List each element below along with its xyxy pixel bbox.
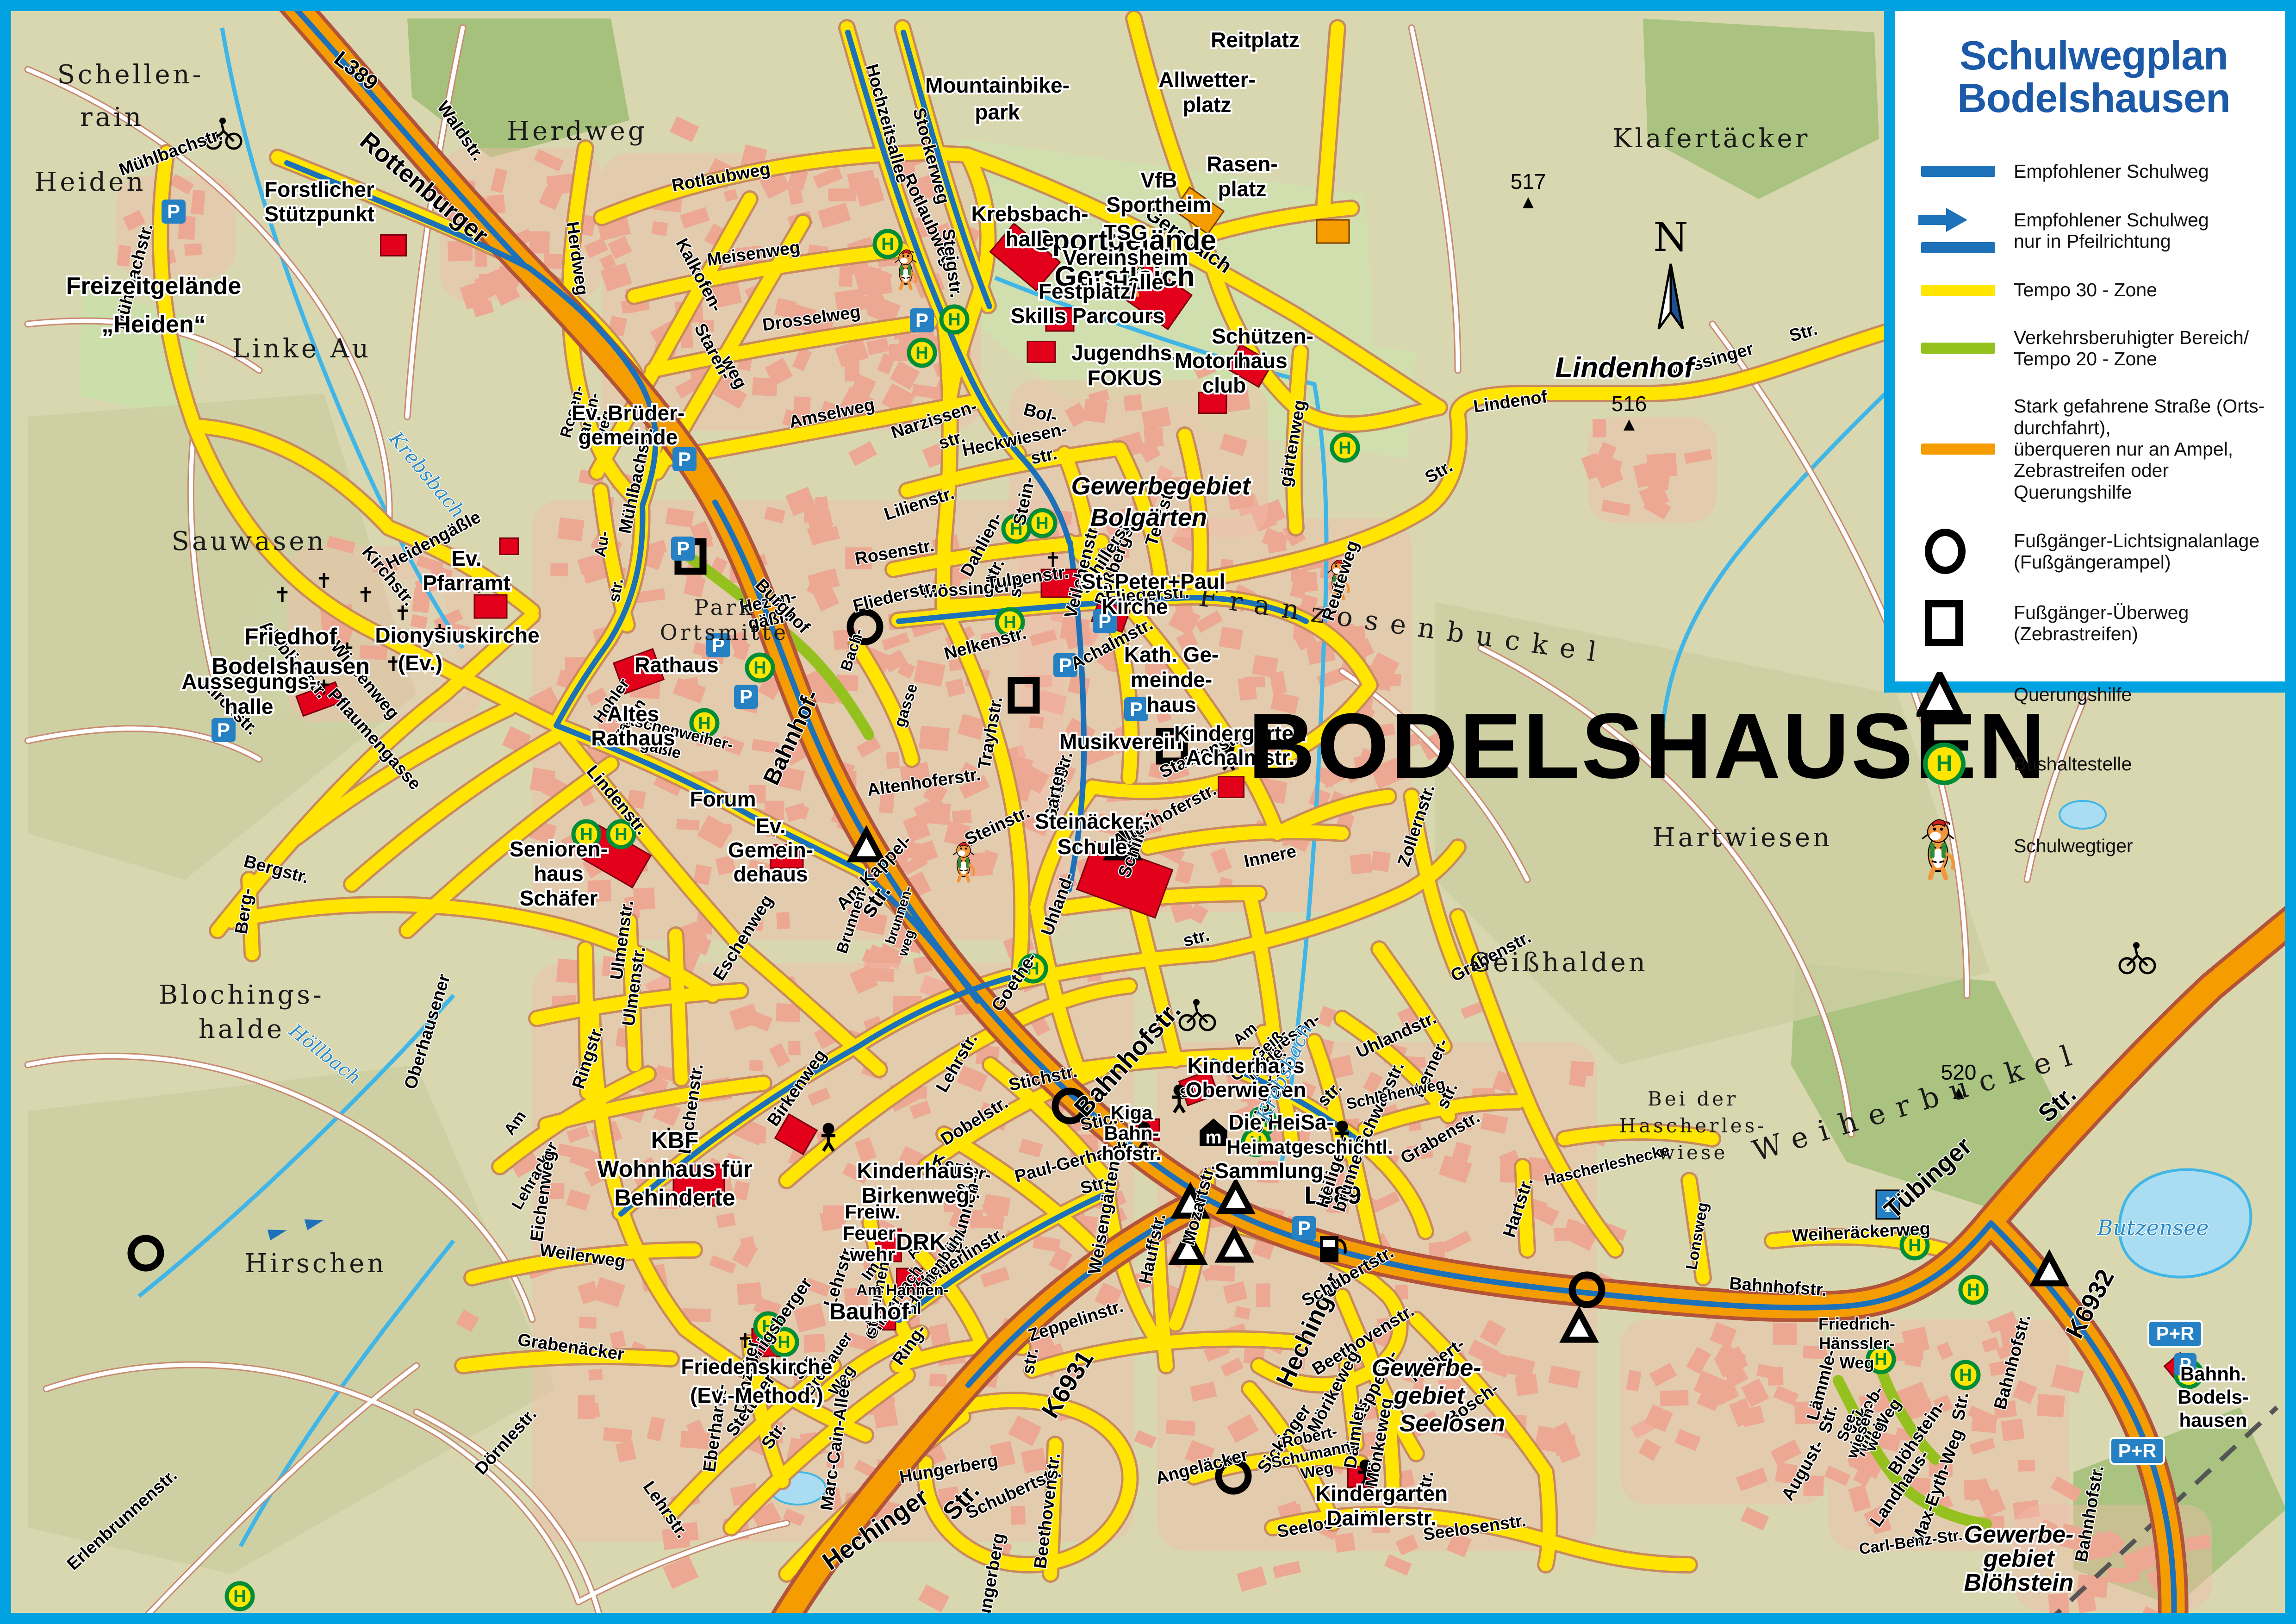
building [1660,1390,1688,1406]
place-label: Blochings- [159,980,324,1010]
legend-item-label: Fußgänger-Lichtsignalanlage(Fußgängeramp… [2014,530,2259,573]
poi-building [381,235,406,256]
park-and-ride-icon: P+R [2148,1321,2202,1347]
poi-label: KBF [651,1127,699,1153]
svg-text:P: P [740,686,753,707]
poi-label: hofstr. [1102,1143,1161,1164]
building [184,243,202,256]
building [1904,1346,1923,1367]
bus-stop-icon: H [1953,1362,1979,1388]
street-label: Am Hannen- [856,1281,949,1299]
street-label: Hänssler- [1819,1334,1895,1353]
schulwegplan-page: ✝✝✝✝✝✝✝✝✝✝✝✝✝HHHHHHHHHHHHHHHHHHHHHHPPPPP… [0,0,2296,1624]
building [803,1334,825,1353]
poi-label: Reitplatz [1211,28,1300,52]
building [1350,854,1372,874]
svg-text:H: H [915,344,928,363]
legend-item-main-road: Stark gefahrene Straße (Orts-durchfahrt)… [1916,395,2271,503]
legend-item-tempo20: Verkehrsberuhigter Bereich/Tempo 20 - Zo… [1916,327,2271,370]
poi-label: Wohnhaus für [597,1156,752,1182]
bus-stop-icon: H [1916,743,2014,785]
parking-icon: P [671,537,695,561]
poi-label: Freizeitgelände [66,273,242,300]
spot-height-label: 517 [1511,169,1546,194]
building [1256,1283,1270,1307]
poi-label: VfB [1140,168,1177,192]
poi-label: Dionysiuskirche [375,623,539,647]
poi-label: gemeinde [579,425,678,449]
building [1029,716,1044,729]
place-label: Geißhalden [1469,948,1648,978]
parking-icon: P [734,685,758,709]
legend-item-label: Schulwegtiger [2014,835,2133,856]
legend-item-label: Fußgänger-Überweg(Zebrastreifen) [2014,602,2189,645]
building [1166,1419,1195,1436]
svg-text:H: H [1959,1366,1972,1385]
svg-text:P: P [167,200,180,222]
poi-label: Steinäcker- [1035,809,1150,833]
poi-building-orange [1317,220,1349,243]
building [839,266,853,287]
building [1334,1532,1356,1553]
poi-label: Krebsbach- [971,202,1088,226]
building [865,968,895,982]
poi-label: gebiet [1393,1382,1466,1409]
poi-label: Stützpunkt [264,202,374,226]
building [930,802,951,825]
poi-label: Gewerbe- [1372,1355,1481,1381]
poi-label: Mountainbike- [925,73,1070,97]
building [1266,532,1287,554]
building [558,517,585,541]
legend-item-label: Verkehrsberuhigter Bereich/Tempo 20 - Zo… [2014,327,2249,370]
street-label: Friedrich- [1818,1314,1895,1333]
building [788,1041,801,1055]
poi-label: Blöhstein [1964,1569,2074,1596]
parking-icon: P [1124,697,1148,721]
poi-label: haus [1146,693,1196,717]
poi-label: Seelosen [1400,1410,1505,1437]
legend-title: Schulwegplan Bodelshausen [1916,34,2271,119]
building [1646,453,1677,478]
legend-items: Empfohlener SchulwegEmpfohlener Schulweg… [1916,161,2271,881]
poi-label: Bahn- [1104,1122,1159,1144]
building [2018,1460,2035,1471]
poi-label: Freiw. [845,1201,900,1223]
poi-label: platz [1218,177,1267,201]
svg-text:H: H [1338,438,1351,458]
poi-label: park [975,100,1020,124]
water-label: Butzensee [2097,1215,2209,1240]
place-label: Park [694,595,754,620]
poi-label: Forstlicher [264,177,374,201]
svg-text:P: P [1298,1217,1311,1239]
svg-text:P+R: P+R [2118,1440,2157,1462]
poi-label: Ev. [451,546,482,570]
poi-label: Allwetter- [1158,68,1256,92]
poi-label: (Ev.) [398,651,442,675]
poi-building [1219,777,1244,798]
route-icon [1916,166,2014,177]
legend-item-route-arrow: Empfohlener Schulwegnur in Pfeilrichtung [1916,208,2271,253]
legend-item-zebra: Fußgänger-Überweg(Zebrastreifen) [1916,600,2271,646]
building [1381,673,1401,687]
spot-height-label: 516 [1612,392,1647,416]
bus-stop-icon: H [909,340,935,366]
place-label: Bei der [1648,1087,1738,1110]
poi-label: Lindenhof [1555,352,1696,384]
poi-label: Friedenskirche [681,1355,832,1379]
poi-label: Bahnh. [2180,1363,2246,1385]
building [1370,851,1390,872]
building [2107,1568,2128,1583]
place-label: Ortsmitte [660,620,789,645]
legend-item-label: Empfohlener Schulwegnur in Pfeilrichtung [2014,209,2209,252]
poi-label: (Ev.-Method.) [690,1383,823,1407]
zebra-icon [1916,600,2014,646]
building [530,768,556,793]
building [1570,1061,1594,1076]
poi-label: Ev. [755,814,786,838]
building [749,1060,763,1072]
svg-text:N: N [1653,214,1688,261]
poi-label: Rathaus [635,653,718,677]
building [929,1374,947,1387]
poi-label: Schäfer [520,886,598,910]
bus-stop-icon: H [1332,435,1358,461]
building [919,725,950,751]
bus-stop-icon: H [227,1583,253,1609]
poi-label: DRK [896,1229,946,1255]
poi-label: FOKUS [1088,366,1162,390]
place-label: rain [80,102,144,132]
legend-item-label: Querungshilfe [2014,684,2132,705]
poi-label: Vereinsheim [1063,245,1188,269]
building [578,1395,595,1419]
poi-label: St. Peter+Paul [1082,569,1226,593]
building [1011,1506,1026,1525]
svg-text:H: H [1874,1350,1887,1369]
poi-label: Pfarramt [423,571,510,595]
poi-label: Kinderhaus [857,1159,974,1183]
place-label: wiese [1658,1141,1728,1164]
legend-item-label: Empfohlener Schulweg [2014,161,2209,182]
svg-text:H: H [233,1587,246,1606]
tempo20-icon [1916,343,2014,354]
svg-text:P: P [915,309,928,331]
building [550,563,568,576]
legend-item-bus-stop: HBushaltestelle [1916,743,2271,785]
poi-label: Musikverein [1059,730,1182,754]
poi-label: Gemein- [728,838,813,862]
building [952,810,972,824]
building [529,231,550,254]
place-label: Herdweg [507,116,647,146]
legend-panel: Schulwegplan Bodelshausen Empfohlener Sc… [1884,11,2285,693]
legend-item-crossing-aid: Querungshilfe [1916,672,2271,717]
poi-label: Jugendhs. [1071,341,1178,365]
poi-label: Ev. Brüder- [572,401,685,425]
parking-icon: P [1292,1216,1316,1240]
poi-label: club [1202,373,1246,397]
poi-label: wehr [849,1243,895,1265]
poi-label: halle [225,694,274,718]
building [588,1369,603,1381]
place-label: Schellen- [57,60,204,90]
poi-label: „Heiden“ [101,311,205,338]
building [886,751,900,769]
tiger-icon [1916,811,2014,881]
building [1593,419,1606,437]
svg-text:P: P [217,719,230,741]
parking-icon: P [162,200,186,224]
building [1515,1374,1538,1396]
svg-text:H: H [615,825,627,844]
poi-building [1027,342,1055,362]
legend-item-label: Bushaltestelle [2014,753,2132,775]
building [1773,1323,1797,1345]
poi-label: Feuer- [843,1222,902,1244]
route-arrow-icon [1916,208,2014,253]
poi-label: gebiet [1983,1545,2055,1572]
building [820,1210,846,1231]
building [844,359,860,381]
building [676,819,700,831]
poi-building [474,595,507,618]
place-label: Hartwiesen [1653,823,1832,853]
building [776,912,790,930]
bus-stop-icon: H [747,655,773,681]
bus-stop-icon: H [1029,510,1055,536]
poi-label: Gewerbegebiet [1071,472,1251,500]
poi-label: Bolgärten [1090,504,1207,531]
bus-stop-icon: H [941,306,967,332]
legend-item-route: Empfohlener Schulweg [1916,161,2271,182]
svg-text:m: m [1205,1127,1222,1148]
svg-text:P+R: P+R [2156,1323,2195,1344]
legend-item-tempo30: Tempo 30 - Zone [1916,279,2271,300]
poi-label: dehaus [733,862,808,886]
building [707,824,732,834]
poi-label: meinde- [1131,668,1212,692]
svg-text:H: H [753,658,766,678]
svg-text:H: H [948,310,960,330]
poi-label: Kiga [1110,1102,1153,1124]
poi-label: TSG [1104,220,1148,244]
poi-label: halle [1006,227,1054,251]
poi-building [500,538,518,555]
crossing-aid-icon [1916,672,2014,717]
street-label: Weg [1839,1353,1874,1372]
svg-text:P: P [678,448,691,470]
place-label: Sauwasen [171,526,326,556]
place-label: Linke Au [232,334,372,364]
poi-label: hausen [2179,1409,2247,1431]
place-label: Heiden [35,167,146,197]
poi-label: Bodels- [2178,1386,2249,1408]
poi-label: Sportheim [1106,193,1211,217]
poi-label: Rasen- [1207,152,1277,176]
poi-label: Die HeiSa- [1228,1110,1334,1134]
poi-label: Festplatz/ [1039,279,1137,303]
poi-label: Kath. Ge- [1124,643,1219,667]
building [1144,428,1164,448]
ped-light-icon [1916,529,2014,574]
svg-text:H: H [1036,514,1048,533]
poi-label: haus [534,862,583,886]
building [737,1282,762,1305]
poi-label: Friedhof [244,624,337,650]
legend-item-tiger: Schulwegtiger [1916,811,2271,881]
building [1124,394,1143,412]
parking-icon: P [910,308,934,332]
poi-label: Altes [607,702,659,726]
church-cross-icon: ✝ [316,570,333,593]
legend-item-label: Tempo 30 - Zone [2014,279,2157,300]
poi-label: platz [1183,93,1232,117]
poi-label: Forum [690,787,756,811]
legend-item-ped-light: Fußgänger-Lichtsignalanlage(Fußgängeramp… [1916,529,2271,574]
building [815,496,829,514]
poi-label: Bauhof [829,1299,909,1324]
poi-label: Aussegungs- [181,669,316,693]
legend-title-line1: Schulwegplan [1916,34,2271,77]
building [652,221,668,236]
svg-text:P: P [1130,698,1143,720]
place-label: halde [199,1014,285,1044]
poi-label: Schützen- [1212,324,1313,348]
legend-title-line2: Bodelshausen [1916,77,2271,119]
building [2037,1394,2065,1418]
church-cross-icon: ✝ [357,584,374,606]
poi-label: Heimatgeschichtl. [1226,1136,1393,1158]
poi-label: Schule [1058,835,1127,859]
poi-label: Daimlerstr. [1326,1506,1437,1530]
church-cross-icon: ✝ [274,584,291,606]
poi-label: Kirche [1101,594,1168,618]
building [2001,1418,2024,1441]
building [579,1317,597,1329]
bus-stop-icon: H [1960,1277,1986,1303]
tempo30-icon [1916,285,2014,296]
poi-label: Skills Parcours [1011,304,1164,328]
building [752,377,778,397]
poi-label: Rathaus [591,726,675,750]
poi-label: haus [1238,349,1287,373]
place-label: Hascherles- [1619,1114,1767,1137]
building [1964,1479,1988,1500]
legend-item-label: Stark gefahrene Straße (Orts-durchfahrt)… [2014,395,2271,503]
building [1244,676,1265,687]
tempo30-road [676,935,681,1079]
main-road-icon [1916,443,2014,455]
svg-text:P: P [677,537,690,559]
building [1060,616,1090,642]
poi-label: Gewerbe- [1964,1521,2074,1548]
place-label: Hirschen [245,1249,387,1279]
poi-label: Senioren- [510,837,608,861]
svg-text:H: H [1967,1280,1979,1300]
parking-icon: P [672,447,697,471]
poi-label: Sammlung [1214,1159,1323,1183]
poi-label: Behinderte [614,1185,735,1211]
building [1219,627,1244,650]
park-and-ride-icon: P+R [2110,1438,2164,1464]
poi-label: Kindergarten [1315,1481,1448,1505]
building [191,190,205,215]
place-label: Klafertäcker [1613,124,1811,154]
schoolway-tiger-icon [891,244,921,291]
